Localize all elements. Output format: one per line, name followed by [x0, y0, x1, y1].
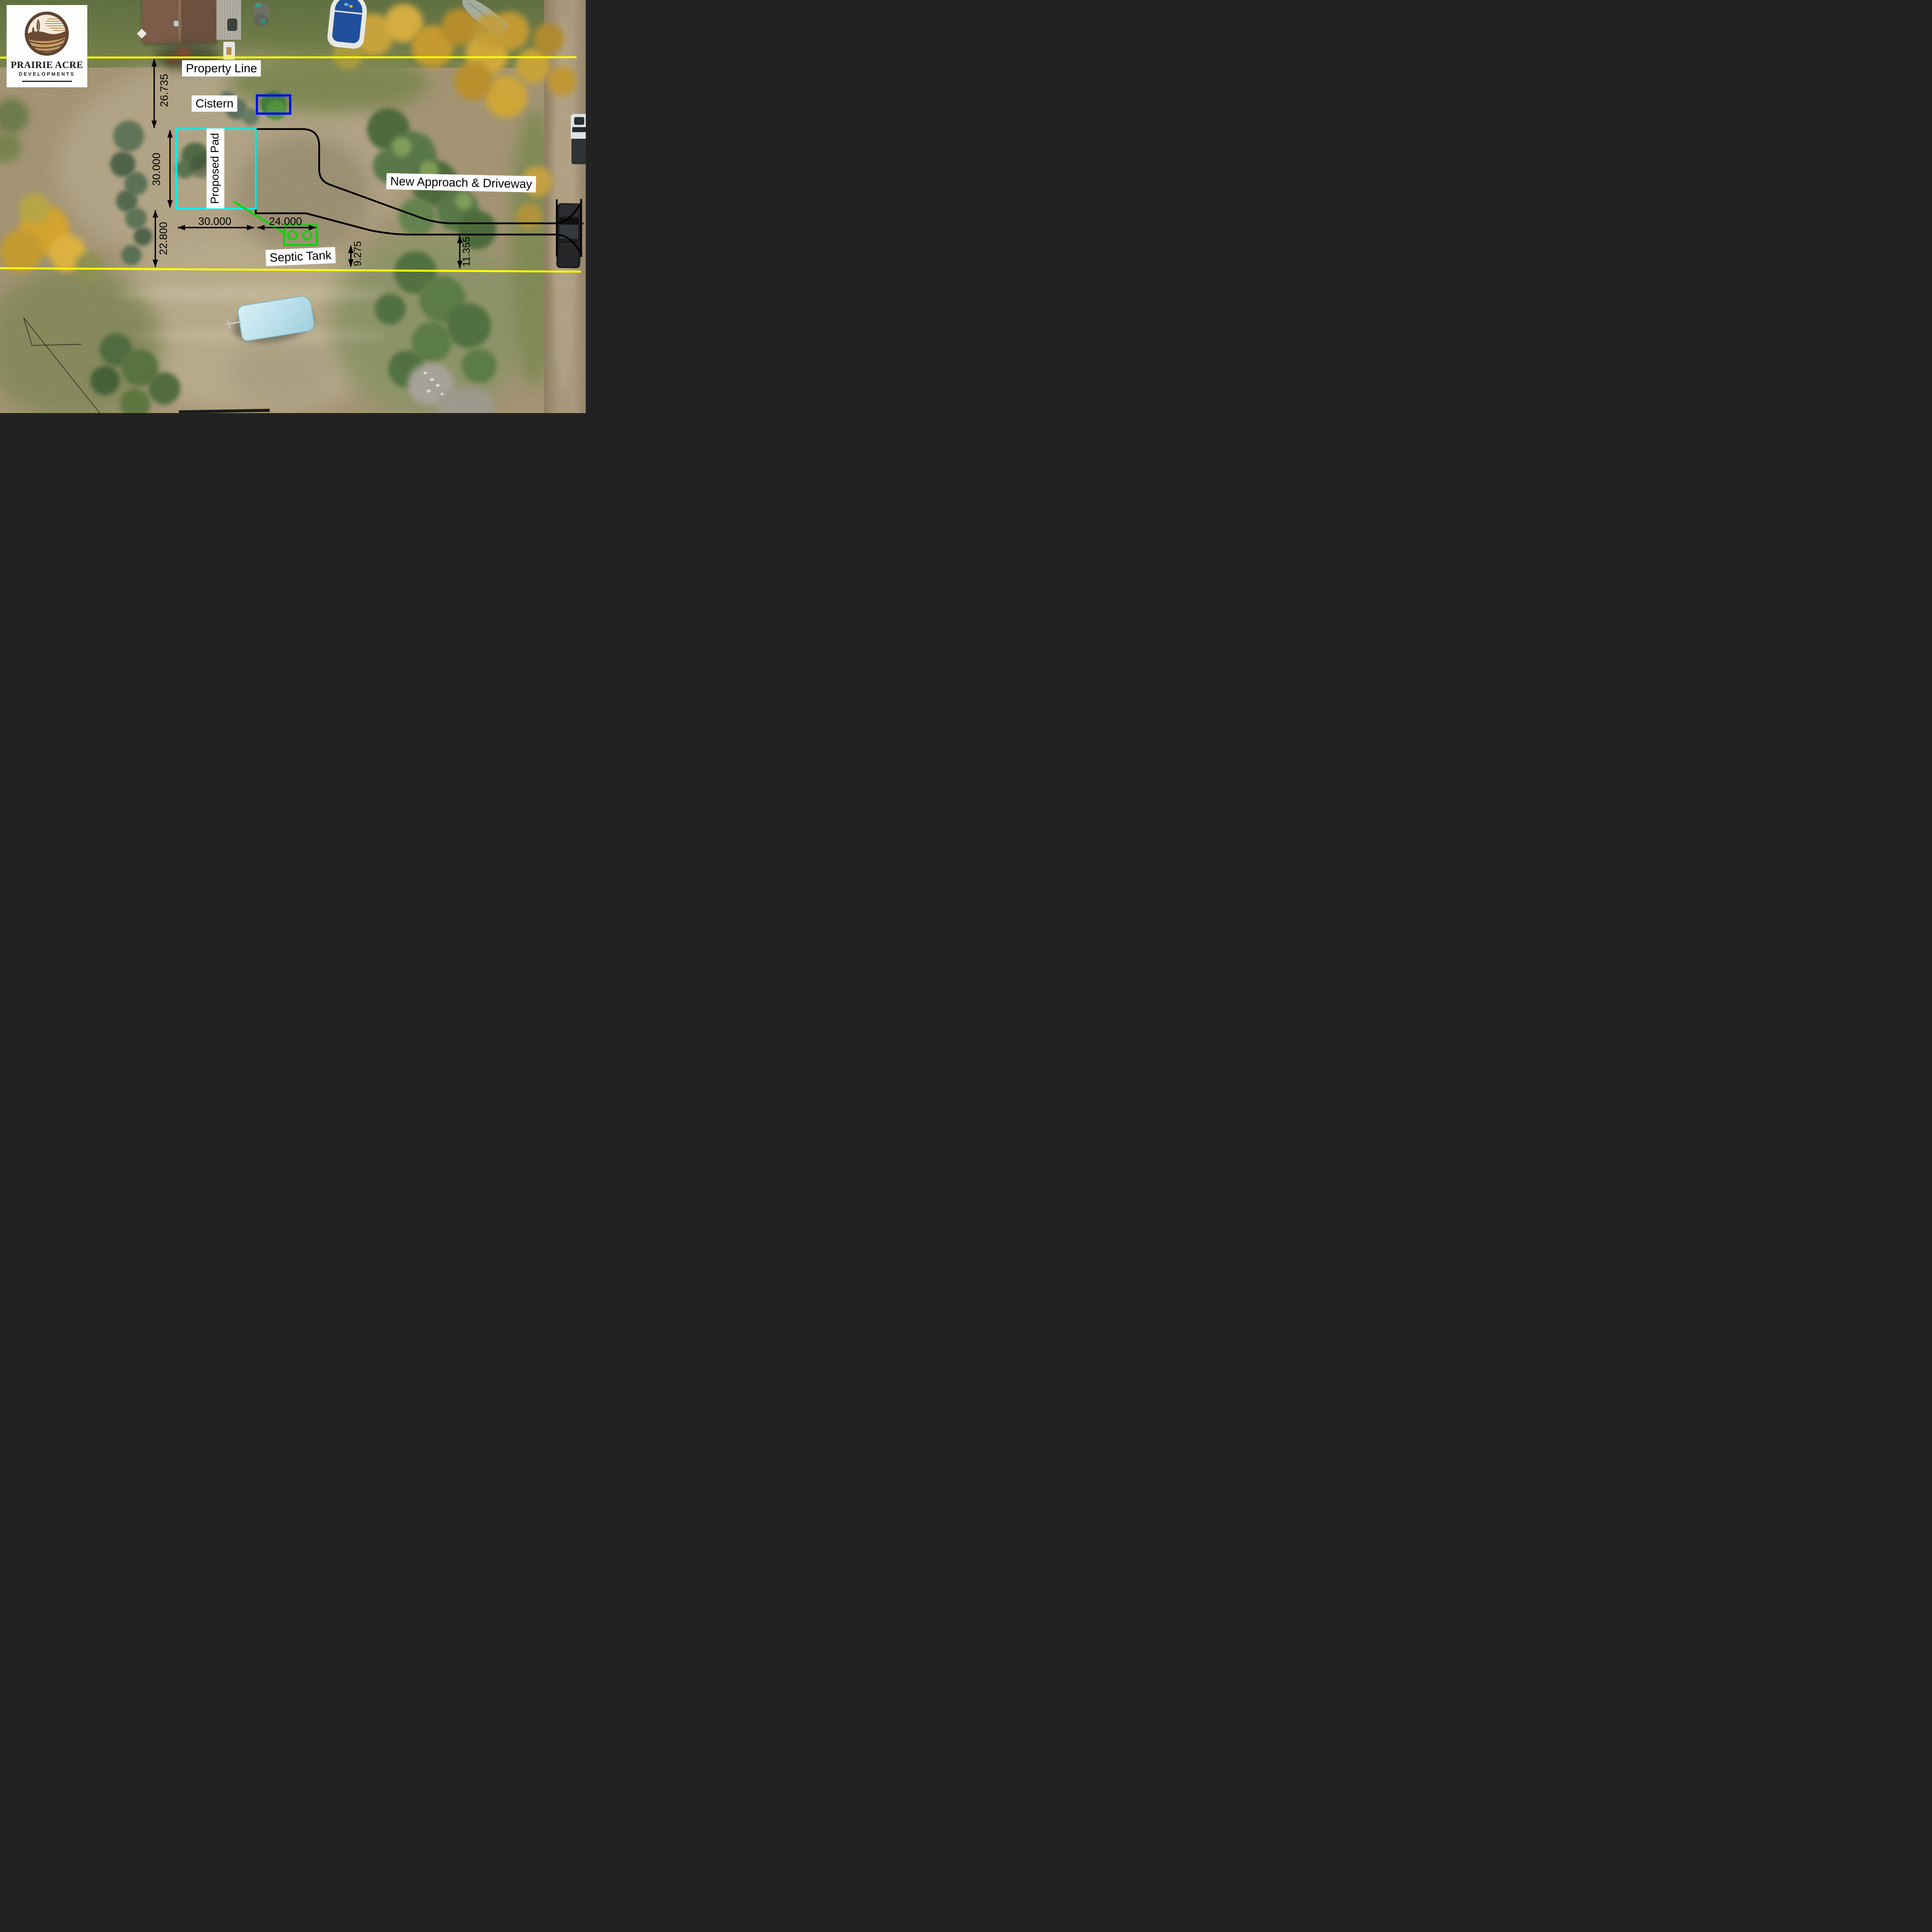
logo-emblem: [24, 10, 70, 57]
approach-flare-top: [557, 202, 581, 223]
proposed-pad-label: Proposed Pad: [207, 129, 224, 209]
dim-text-30-depth: 30.000: [150, 153, 163, 186]
approach-flare-bottom: [557, 235, 581, 254]
logo-card: PRAIRIE ACRE DEVELOPMENTS: [7, 5, 87, 87]
property-line-south: [0, 268, 581, 272]
dim-text-30-width: 30.000: [198, 215, 231, 228]
property-line-label: Property Line: [182, 60, 261, 77]
logo-rule: [22, 81, 72, 82]
dim-text-22-800: 22.800: [157, 222, 170, 255]
dim-text-24-000: 24.000: [269, 215, 302, 228]
logo-title: PRAIRIE ACRE: [7, 60, 87, 71]
dim-text-11-355: 11.355: [460, 237, 472, 267]
new-approach-label: New Approach & Driveway: [386, 173, 536, 192]
cistern-label: Cistern: [192, 95, 237, 112]
logo-subtitle: DEVELOPMENTS: [7, 71, 87, 77]
dim-text-9-275: 9.275: [352, 241, 364, 266]
dimension-arrows: [154, 59, 460, 268]
site-plan-image: Property Line Cistern Proposed Pad Septi…: [0, 0, 586, 413]
annotation-overlay: [0, 0, 586, 413]
survey-lines: [24, 318, 100, 413]
septic-tank-label: Septic Tank: [265, 247, 335, 266]
cistern-outline: [257, 95, 290, 114]
fence-shadow: [179, 409, 270, 413]
dim-text-26-735: 26.735: [158, 74, 170, 107]
